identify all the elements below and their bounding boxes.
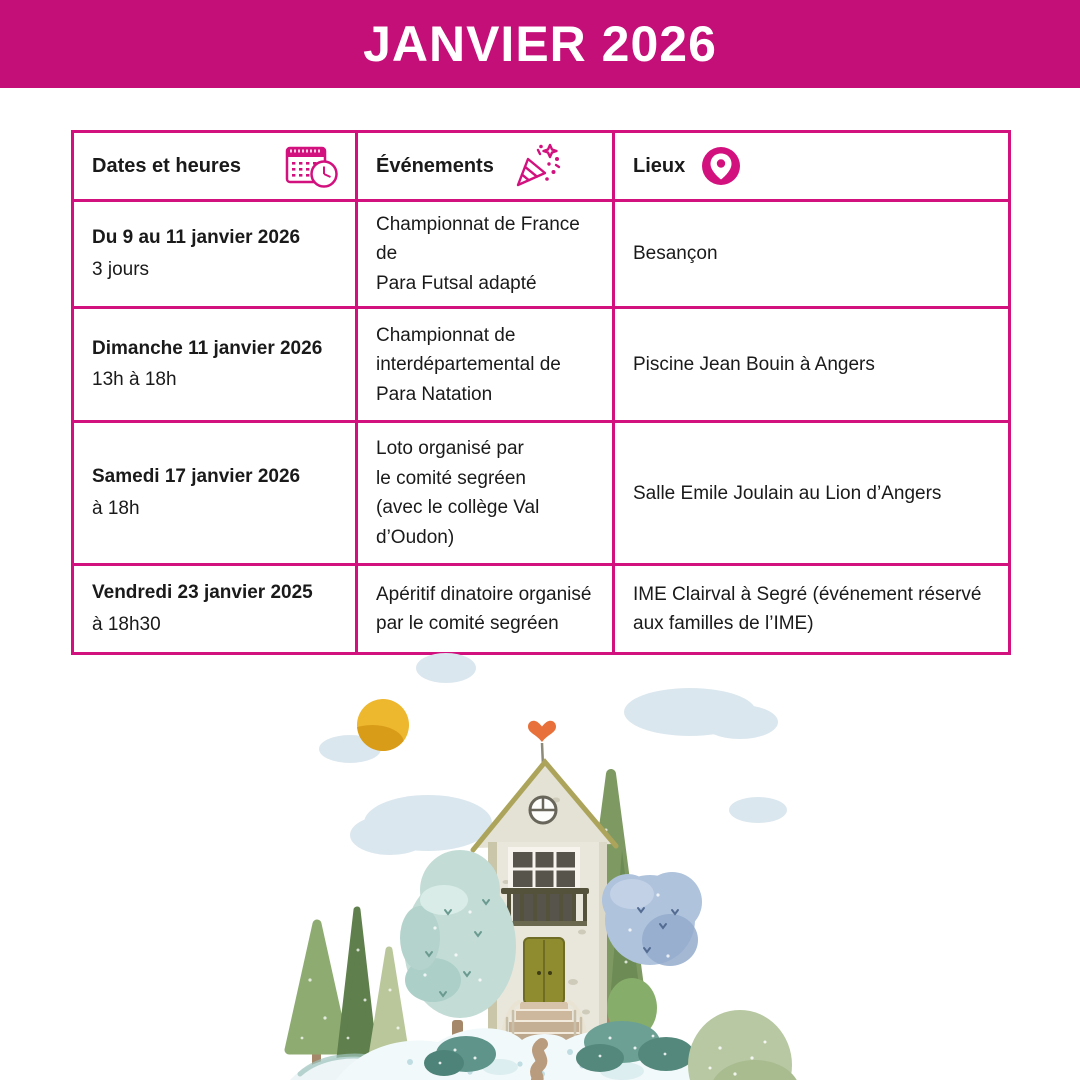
event-place: Piscine Jean Bouin à Angers: [614, 308, 1010, 422]
flyer-page: JANVIER 2026 Dates et heures: [0, 0, 1080, 1080]
event-place: IME Clairval à Segré (événement réservé …: [614, 565, 1010, 654]
table-row: Dimanche 11 janvier 2026 13h à 18h Champ…: [73, 308, 1010, 422]
balcony-window: [508, 847, 580, 922]
house-illustration: [270, 650, 810, 1080]
date-cell: Du 9 au 11 janvier 2026 3 jours: [73, 201, 357, 308]
right-bush: [688, 1010, 800, 1080]
col-header-events: Événements: [357, 132, 614, 201]
table-row: Du 9 au 11 janvier 2026 3 jours Champion…: [73, 201, 1010, 308]
table-row: Vendredi 23 janvier 2025 à 18h30 Apériti…: [73, 565, 1010, 654]
table-row: Samedi 17 janvier 2026 à 18h Loto organi…: [73, 422, 1010, 565]
round-window: [530, 797, 556, 823]
date-cell: Samedi 17 janvier 2026 à 18h: [73, 422, 357, 565]
col-header-places: Lieux: [614, 132, 1010, 201]
date-cell: Dimanche 11 janvier 2026 13h à 18h: [73, 308, 357, 422]
event-time: à 18h30: [92, 613, 339, 638]
event-name: Championnat de France de Para Futsal ada…: [357, 201, 614, 308]
event-time: 3 jours: [92, 258, 339, 283]
event-time: à 18h: [92, 497, 339, 522]
event-name: Apéritif dinatoire organisé par le comit…: [357, 565, 614, 654]
calendar-clock-icon: [285, 143, 339, 189]
event-time: 13h à 18h: [92, 368, 339, 393]
col-header-events-label: Événements: [376, 155, 494, 178]
heart: [528, 721, 556, 742]
event-name: Championnat de interdépartemental de Par…: [357, 308, 614, 422]
col-header-dates: Dates et heures: [73, 132, 357, 201]
event-date: Dimanche 11 janvier 2026: [92, 337, 339, 362]
door: [524, 938, 564, 1004]
event-name: Loto organisé par le comité segréen (ave…: [357, 422, 614, 565]
walkway-path: [536, 1044, 542, 1080]
party-popper-icon: [512, 141, 562, 191]
event-date: Vendredi 23 janvier 2025: [92, 581, 339, 606]
events-table: Dates et heures: [71, 130, 1011, 655]
col-header-places-label: Lieux: [633, 155, 685, 178]
col-header-dates-label: Dates et heures: [92, 155, 241, 178]
event-date: Du 9 au 11 janvier 2026: [92, 226, 339, 251]
event-place: Salle Emile Joulain au Lion d’Angers: [614, 422, 1010, 565]
event-date: Samedi 17 janvier 2026: [92, 465, 339, 490]
table-header-row: Dates et heures: [73, 132, 1010, 201]
date-cell: Vendredi 23 janvier 2025 à 18h30: [73, 565, 357, 654]
event-place: Besançon: [614, 201, 1010, 308]
location-pin-icon: [701, 146, 741, 186]
month-title: JANVIER 2026: [363, 15, 717, 73]
month-banner: JANVIER 2026: [0, 0, 1080, 88]
